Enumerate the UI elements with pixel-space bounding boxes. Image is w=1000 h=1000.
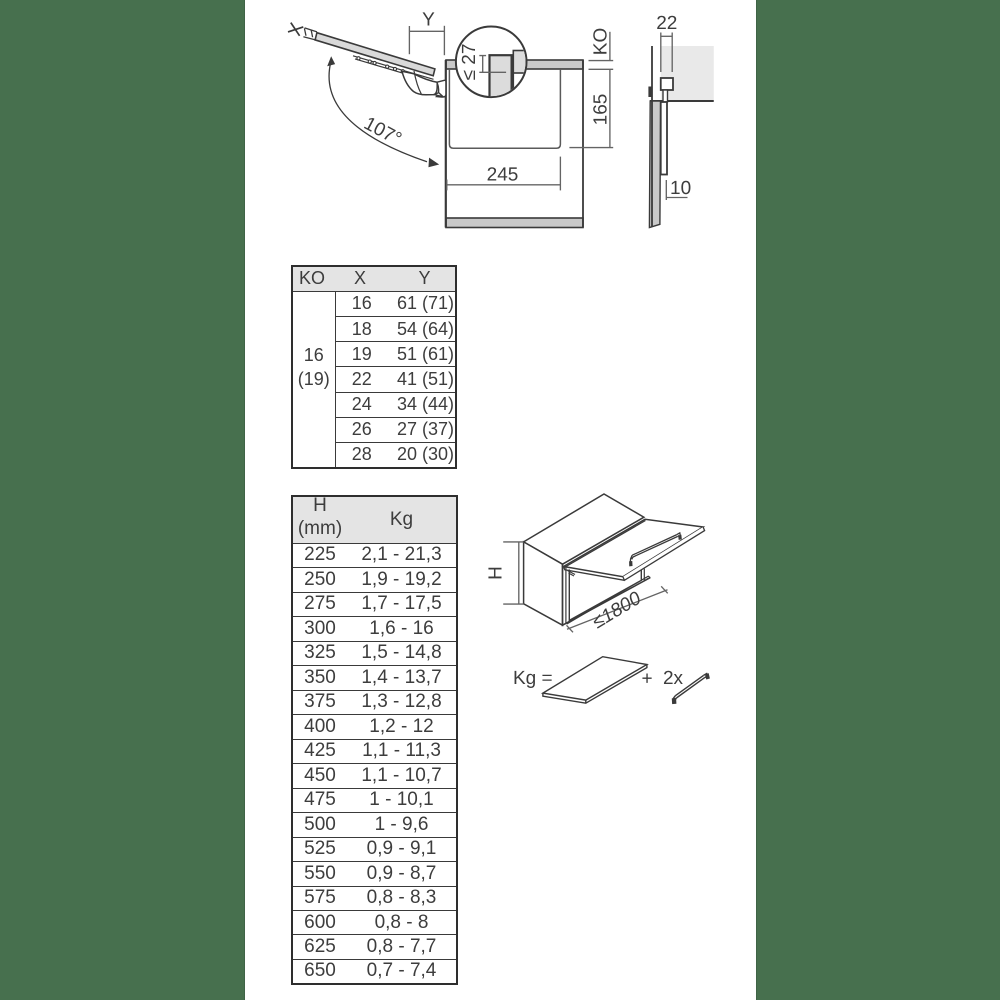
svg-text:Y: Y <box>422 10 435 31</box>
svg-text:107°: 107° <box>360 113 405 150</box>
svg-text:+: + <box>641 669 652 690</box>
svg-text:10: 10 <box>670 178 691 199</box>
svg-text:22: 22 <box>656 13 677 34</box>
svg-text:Kg =: Kg = <box>513 668 553 689</box>
svg-text:≤ 27: ≤ 27 <box>459 44 480 81</box>
svg-text:KO: KO <box>591 28 612 55</box>
svg-text:165: 165 <box>591 94 612 126</box>
svg-text:245: 245 <box>487 165 519 186</box>
svg-text:H: H <box>486 566 507 580</box>
svg-text:2x: 2x <box>663 668 684 689</box>
